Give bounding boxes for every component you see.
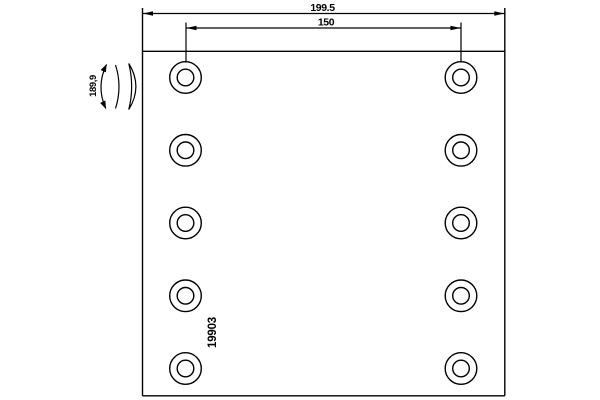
rivet-hole-outer: [170, 62, 202, 94]
rivet-hole: [445, 207, 477, 239]
rivet-hole-inner: [453, 288, 470, 305]
drawing-canvas: 199.5 150 189,9: [0, 0, 600, 400]
rivet-hole-inner: [177, 69, 194, 86]
profile-inner-arc: [116, 65, 120, 109]
rivet-hole: [445, 135, 477, 167]
brake-lining-technical-drawing: 199.5 150 189,9: [0, 0, 600, 400]
rivet-hole-outer: [445, 62, 477, 94]
rivet-hole: [170, 207, 202, 239]
rivet-hole-inner: [453, 142, 470, 159]
rivet-hole: [170, 280, 202, 312]
rivet-hole-inner: [453, 69, 470, 86]
rivet-hole-inner: [453, 360, 470, 377]
rivet-hole-outer: [170, 353, 202, 385]
rivet-hole-inner: [177, 142, 194, 159]
part-number-label: 19903: [207, 317, 219, 348]
rivet-hole: [170, 62, 202, 94]
rivet-hole-outer: [445, 207, 477, 239]
arrowhead-left: [143, 11, 153, 16]
rivet-hole: [170, 135, 202, 167]
arrowhead-right: [494, 11, 504, 16]
rivet-hole: [445, 280, 477, 312]
arrowhead-left: [187, 26, 197, 31]
dimension-overall-width-label: 199.5: [310, 2, 335, 14]
arrowhead-right: [451, 26, 461, 31]
dimension-hole-pitch-label: 150: [318, 17, 335, 29]
dimension-overall-width: 199.5: [143, 2, 505, 16]
curvature-value-label: 189,9: [88, 75, 99, 97]
rivet-hole-inner: [177, 288, 194, 305]
rivet-hole-inner: [177, 360, 194, 377]
dimension-hole-pitch: 150: [186, 17, 461, 63]
rivet-hole-outer: [445, 135, 477, 167]
rivet-hole-inner: [453, 215, 470, 232]
rivet-hole-outer: [170, 135, 202, 167]
rivet-hole-outer: [170, 207, 202, 239]
rivet-hole: [170, 353, 202, 385]
profile-outer-band: [129, 64, 136, 110]
rivet-hole-outer: [445, 280, 477, 312]
curvature-symbol: 189,9: [88, 64, 136, 110]
rivet-hole-inner: [177, 215, 194, 232]
rivet-hole-outer: [170, 280, 202, 312]
rivet-hole: [445, 353, 477, 385]
rivet-hole-outer: [445, 353, 477, 385]
curvature-dimension-arc: [101, 65, 107, 109]
rivet-hole: [445, 62, 477, 94]
